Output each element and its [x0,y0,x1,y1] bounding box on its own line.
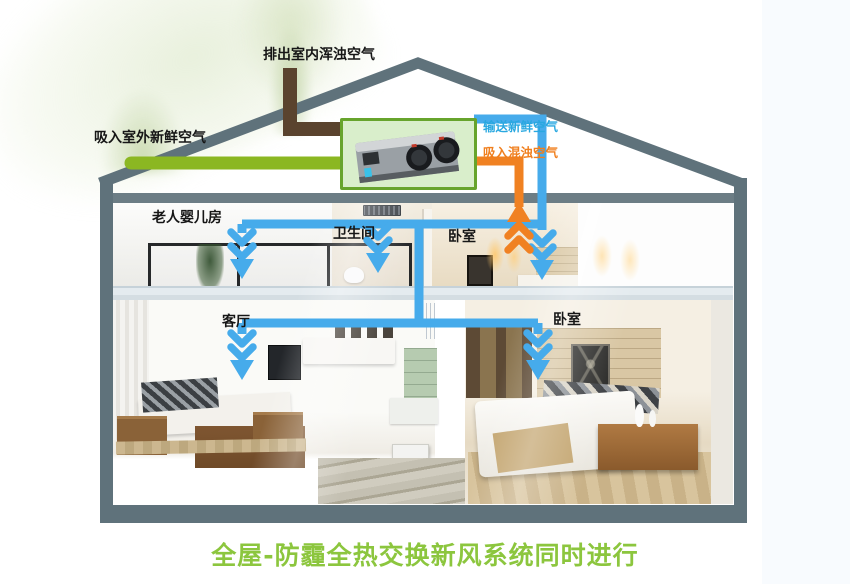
potted-plant [196,244,224,292]
ceiling-slab [106,193,740,203]
right-wall [734,178,747,522]
mid-floor-slab [111,286,733,300]
warm-downlight [486,237,504,273]
smoke-plume-core [270,30,312,135]
tv-screen [268,345,301,380]
fresh-air-intake-label: 吸入室外新鲜空气 [94,131,206,146]
hrv-fan-mark [412,144,417,148]
room-label-elderly-baby: 老人婴儿房 [152,211,222,226]
tv-cabinet [598,424,698,470]
base [100,505,747,523]
vase [635,404,644,427]
room-label-bathroom: 卫生间 [333,227,375,242]
hrv-unit [343,121,474,187]
chandelier [426,303,435,339]
side-wall-tile [711,300,733,504]
patterned-pillows [141,377,219,412]
wardrobe [466,322,532,398]
supply-fresh-air-label: 输送新鲜空气 [483,120,558,134]
rail-mullion [327,246,330,289]
room-bedroom-lower [465,300,733,504]
kitchen-counter [390,398,438,424]
background-tint [762,0,850,584]
bathroom-door [422,209,432,287]
white-sofa [303,338,395,364]
warm-downlight [592,235,612,277]
stone-tile-steps [318,458,465,504]
hrv-unit-panel [340,118,477,190]
upper-right-wall [578,203,733,287]
hrv-fan-mark [439,136,444,140]
exhaust-duct [290,68,342,129]
room-label-living: 客厅 [222,315,250,330]
rail-mullion [237,246,240,289]
ventilation-diagram: 排出室内浑浊空气 吸入室外新鲜空气 输送新鲜空气 吸入混浊空气 老人婴儿房 卫生… [0,0,850,584]
page-title: 全屋-防霾全热交换新风系统同时进行 [0,536,850,572]
kitchen-cabinet [404,348,437,398]
room-label-bedroom-upper: 卧室 [448,230,476,245]
return-dirty-air-label: 吸入混浊空气 [483,146,558,160]
ceiling-vent-grille [363,205,401,216]
picture-frames [335,324,397,338]
glass-balcony-rail [148,243,412,292]
exhaust-air-label: 排出室内浑浊空气 [263,48,375,63]
warm-downlight [620,239,640,281]
return-air-duct [474,161,519,207]
hrv-sticker [364,168,372,178]
room-label-bedroom-lower: 卧室 [553,313,581,328]
hrv-label-plate [362,152,379,166]
vase [649,410,656,427]
warm-downlight [506,241,522,273]
